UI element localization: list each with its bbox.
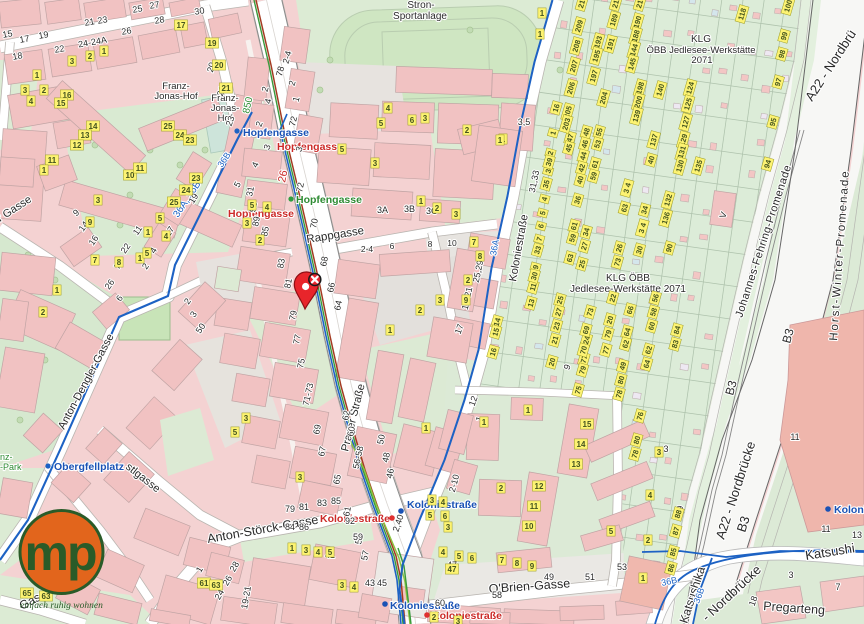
- svg-text:11: 11: [136, 164, 145, 173]
- svg-text:1: 1: [55, 286, 60, 295]
- svg-text:Kolonies: Kolonies: [834, 504, 864, 516]
- svg-text:53: 53: [617, 562, 627, 572]
- svg-text:Koloniestraße: Koloniestraße: [320, 513, 390, 525]
- svg-text:3: 3: [423, 114, 428, 123]
- svg-text:70: 70: [308, 217, 320, 229]
- svg-text:Jonas-Hof: Jonas-Hof: [154, 91, 198, 102]
- svg-text:1: 1: [290, 544, 295, 553]
- svg-text:1: 1: [641, 574, 646, 583]
- svg-text:13: 13: [572, 460, 581, 469]
- svg-text:8: 8: [117, 258, 122, 267]
- svg-text:27: 27: [149, 0, 161, 11]
- svg-text:einfach ruhig wohnen: einfach ruhig wohnen: [20, 600, 103, 611]
- svg-text:3: 3: [456, 617, 461, 624]
- svg-text:2: 2: [88, 52, 93, 61]
- svg-text:6: 6: [470, 554, 475, 563]
- svg-text:2: 2: [418, 306, 423, 315]
- svg-text:69: 69: [311, 423, 323, 435]
- svg-text:2-4: 2-4: [361, 244, 374, 254]
- svg-text:11: 11: [530, 502, 539, 511]
- svg-text:1: 1: [419, 197, 424, 206]
- svg-text:6: 6: [443, 512, 448, 521]
- svg-text:3: 3: [304, 546, 309, 555]
- svg-text:49: 49: [544, 572, 554, 582]
- svg-text:60: 60: [345, 425, 357, 437]
- svg-text:23: 23: [192, 174, 201, 183]
- svg-text:2: 2: [42, 86, 47, 95]
- svg-text:9: 9: [530, 562, 535, 571]
- svg-text:3: 3: [446, 523, 451, 532]
- svg-text:15: 15: [57, 99, 66, 108]
- svg-text:4: 4: [265, 203, 270, 212]
- svg-text:3: 3: [245, 219, 250, 228]
- svg-text:5: 5: [145, 249, 150, 258]
- svg-text:1: 1: [538, 30, 543, 39]
- svg-text:23: 23: [97, 14, 109, 26]
- svg-text:12: 12: [73, 141, 82, 150]
- svg-text:4: 4: [29, 97, 34, 106]
- svg-text:5: 5: [428, 511, 433, 520]
- svg-text:5: 5: [609, 527, 614, 536]
- svg-text:60: 60: [435, 598, 445, 608]
- svg-text:62: 62: [340, 409, 352, 421]
- svg-text:1: 1: [482, 418, 487, 427]
- svg-text:20: 20: [215, 61, 224, 70]
- svg-text:68: 68: [318, 255, 330, 267]
- svg-text:57: 57: [359, 549, 371, 561]
- svg-text:67: 67: [316, 445, 328, 457]
- svg-text:mp: mp: [25, 525, 96, 581]
- svg-text:1: 1: [35, 71, 40, 80]
- svg-text:84: 84: [285, 522, 295, 532]
- svg-text:11: 11: [790, 432, 799, 442]
- svg-text:14: 14: [577, 440, 586, 449]
- svg-text:5: 5: [340, 145, 345, 154]
- svg-text:72: 72: [294, 181, 306, 193]
- svg-text:4: 4: [164, 232, 169, 241]
- svg-text:3B: 3B: [404, 204, 415, 214]
- svg-text:Stron-: Stron-: [407, 0, 434, 11]
- svg-text:63: 63: [212, 581, 221, 590]
- svg-text:24: 24: [182, 186, 191, 195]
- svg-text:11: 11: [48, 156, 57, 165]
- svg-text:3: 3: [244, 414, 249, 423]
- svg-text:3: 3: [657, 448, 662, 457]
- svg-text:4: 4: [441, 548, 446, 557]
- svg-text:12: 12: [535, 482, 544, 491]
- svg-text:5: 5: [457, 552, 462, 561]
- svg-text:4: 4: [386, 104, 391, 113]
- svg-text:50: 50: [375, 433, 387, 445]
- svg-text:3: 3: [96, 196, 101, 205]
- svg-text:13: 13: [852, 530, 862, 540]
- svg-text:5: 5: [250, 201, 255, 210]
- svg-text:5: 5: [379, 119, 384, 128]
- svg-text:11: 11: [821, 524, 830, 534]
- svg-text:1: 1: [138, 254, 143, 263]
- svg-text:77: 77: [291, 333, 303, 345]
- svg-text:7: 7: [835, 582, 840, 592]
- svg-text:1: 1: [526, 406, 531, 415]
- svg-text:2: 2: [466, 276, 471, 285]
- svg-text:Hopfengasse: Hopfengasse: [243, 127, 309, 139]
- svg-text:45: 45: [377, 578, 387, 588]
- svg-text:21: 21: [222, 84, 231, 93]
- svg-text:26: 26: [121, 25, 133, 37]
- svg-text:83: 83: [275, 257, 287, 269]
- svg-text:15: 15: [2, 28, 14, 40]
- svg-text:79: 79: [285, 504, 295, 514]
- svg-text:1: 1: [424, 424, 429, 433]
- svg-text:48: 48: [380, 451, 392, 463]
- svg-text:1: 1: [102, 47, 107, 56]
- svg-text:51: 51: [585, 572, 595, 582]
- svg-text:7: 7: [93, 256, 98, 265]
- svg-text:92: 92: [345, 516, 355, 526]
- svg-text:3A: 3A: [377, 205, 388, 215]
- svg-text:3: 3: [663, 444, 668, 454]
- svg-text:Obergfellplatz: Obergfellplatz: [54, 461, 124, 473]
- svg-text:2: 2: [258, 236, 263, 245]
- svg-text:25: 25: [132, 3, 144, 15]
- svg-text:30: 30: [194, 5, 206, 17]
- svg-text:14: 14: [89, 122, 98, 131]
- svg-text:17: 17: [19, 33, 31, 45]
- svg-text:4: 4: [441, 498, 446, 507]
- svg-text:1: 1: [146, 228, 151, 237]
- svg-text:KLG ÖBB: KLG ÖBB: [606, 272, 650, 284]
- svg-text:3: 3: [23, 86, 28, 95]
- svg-text:7: 7: [500, 556, 505, 565]
- svg-text:19: 19: [38, 29, 50, 41]
- svg-text:10: 10: [525, 522, 534, 531]
- svg-text:4: 4: [316, 548, 321, 557]
- svg-text:-Park: -Park: [0, 462, 22, 472]
- svg-text:86: 86: [299, 522, 309, 532]
- svg-text:1: 1: [388, 326, 393, 335]
- svg-text:3,5: 3,5: [518, 117, 531, 127]
- svg-text:13: 13: [81, 131, 90, 140]
- svg-text:8: 8: [478, 252, 483, 261]
- svg-text:83: 83: [317, 498, 327, 508]
- svg-text:4: 4: [352, 583, 357, 592]
- svg-text:81: 81: [299, 502, 309, 512]
- svg-text:5: 5: [233, 428, 238, 437]
- svg-text:2: 2: [646, 536, 651, 545]
- svg-text:3: 3: [70, 57, 75, 66]
- svg-text:2: 2: [435, 204, 440, 213]
- svg-text:8: 8: [515, 559, 520, 568]
- svg-text:5: 5: [158, 214, 163, 223]
- svg-text:2: 2: [465, 126, 470, 135]
- svg-text:3: 3: [788, 570, 793, 580]
- svg-text:2: 2: [432, 613, 437, 622]
- svg-text:6: 6: [390, 241, 395, 251]
- svg-text:21: 21: [84, 16, 96, 28]
- svg-text:nz-: nz-: [0, 452, 13, 462]
- svg-text:1: 1: [42, 166, 47, 175]
- svg-text:7: 7: [472, 238, 477, 247]
- svg-text:85: 85: [331, 496, 341, 506]
- svg-text:47: 47: [448, 565, 457, 574]
- svg-text:2071: 2071: [691, 55, 712, 66]
- svg-text:Hopfengasse: Hopfengasse: [277, 141, 343, 153]
- svg-text:61: 61: [200, 579, 209, 588]
- svg-text:5: 5: [328, 548, 333, 557]
- svg-text:3: 3: [454, 210, 459, 219]
- svg-text:64: 64: [332, 299, 344, 311]
- svg-text:Hopfengasse: Hopfengasse: [296, 194, 362, 206]
- svg-text:79: 79: [287, 309, 299, 321]
- svg-text:43: 43: [365, 578, 375, 588]
- svg-text:KLG: KLG: [691, 34, 711, 45]
- svg-text:31: 31: [244, 185, 256, 197]
- svg-text:9: 9: [464, 296, 469, 305]
- svg-text:81: 81: [282, 277, 294, 289]
- svg-text:3: 3: [438, 296, 443, 305]
- svg-text:Jedlesee-Werkstätte 2071: Jedlesee-Werkstätte 2071: [570, 284, 686, 295]
- svg-text:8: 8: [428, 239, 433, 249]
- svg-text:3: 3: [373, 159, 378, 168]
- svg-text:65: 65: [23, 589, 32, 598]
- svg-text:6: 6: [410, 116, 415, 125]
- svg-text:66: 66: [325, 281, 337, 293]
- svg-text:19: 19: [208, 39, 217, 48]
- svg-text:2: 2: [41, 308, 46, 317]
- svg-text:58: 58: [492, 590, 502, 600]
- svg-text:9: 9: [88, 218, 93, 227]
- svg-text:26: 26: [276, 169, 290, 183]
- svg-text:2: 2: [499, 484, 504, 493]
- svg-text:3: 3: [298, 473, 303, 482]
- svg-text:23: 23: [186, 136, 195, 145]
- svg-text:22: 22: [54, 43, 66, 55]
- svg-text:25: 25: [170, 198, 179, 207]
- svg-text:3: 3: [340, 581, 345, 590]
- svg-text:25: 25: [164, 122, 173, 131]
- svg-text:15: 15: [583, 420, 592, 429]
- svg-text:18: 18: [12, 50, 24, 62]
- svg-text:10: 10: [447, 238, 457, 248]
- svg-text:46: 46: [384, 467, 396, 479]
- svg-text:1: 1: [540, 9, 545, 18]
- svg-text:59: 59: [353, 532, 363, 542]
- svg-text:4: 4: [648, 491, 653, 500]
- svg-text:17: 17: [177, 21, 186, 30]
- svg-text:1: 1: [498, 136, 503, 145]
- svg-text:Koloniestraße: Koloniestraße: [432, 610, 502, 622]
- svg-text:28: 28: [154, 14, 166, 26]
- svg-text:75: 75: [295, 357, 307, 369]
- svg-text:3: 3: [430, 496, 435, 505]
- svg-text:65: 65: [331, 473, 343, 485]
- svg-text:Sportanlage: Sportanlage: [393, 11, 447, 22]
